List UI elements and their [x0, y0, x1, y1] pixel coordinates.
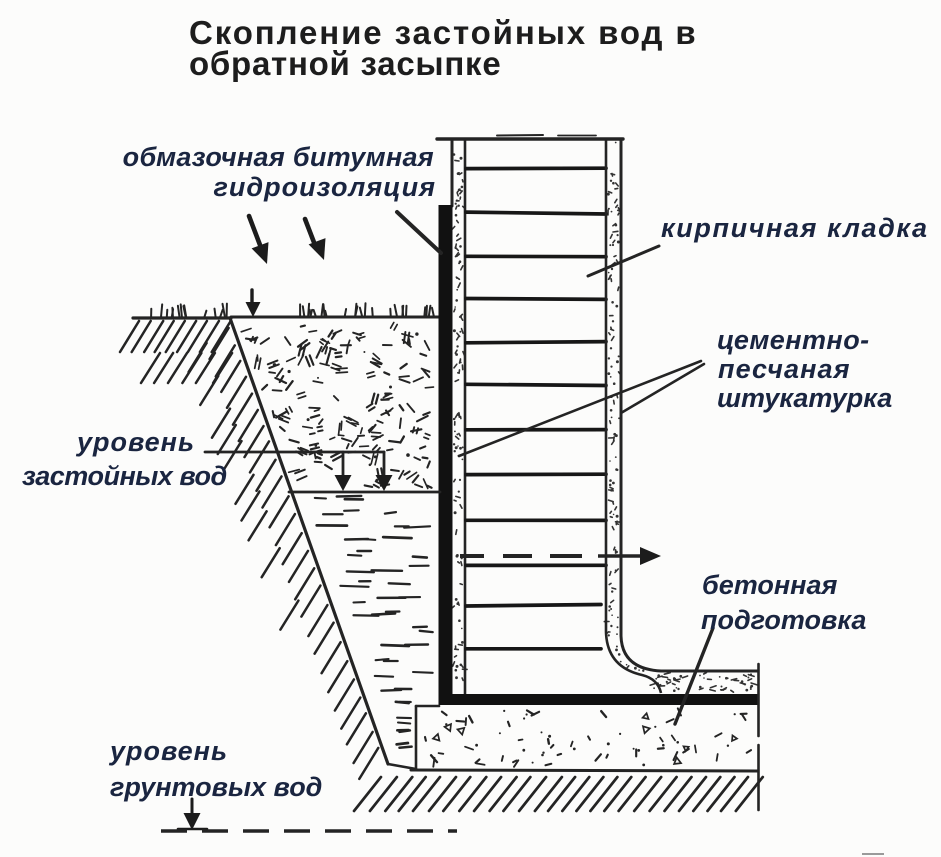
- svg-text:гидроизоляция: гидроизоляция: [213, 172, 436, 202]
- svg-text:кирпичная кладка: кирпичная кладка: [661, 213, 929, 243]
- svg-text:застойных вод: застойных вод: [22, 461, 227, 491]
- svg-text:штукатурка: штукатурка: [717, 383, 892, 413]
- svg-text:уровень: уровень: [108, 736, 228, 766]
- svg-text:обратной засыпке: обратной засыпке: [189, 45, 501, 82]
- svg-text:бетонная: бетонная: [702, 570, 838, 600]
- svg-text:цементно-: цементно-: [717, 325, 870, 355]
- svg-text:грунтовых вод: грунтовых вод: [110, 772, 322, 802]
- svg-text:песчаная: песчаная: [718, 354, 851, 384]
- svg-text:подготовка: подготовка: [701, 605, 866, 635]
- svg-text:уровень: уровень: [75, 427, 195, 457]
- svg-text:обмазочная битумная: обмазочная битумная: [123, 142, 434, 172]
